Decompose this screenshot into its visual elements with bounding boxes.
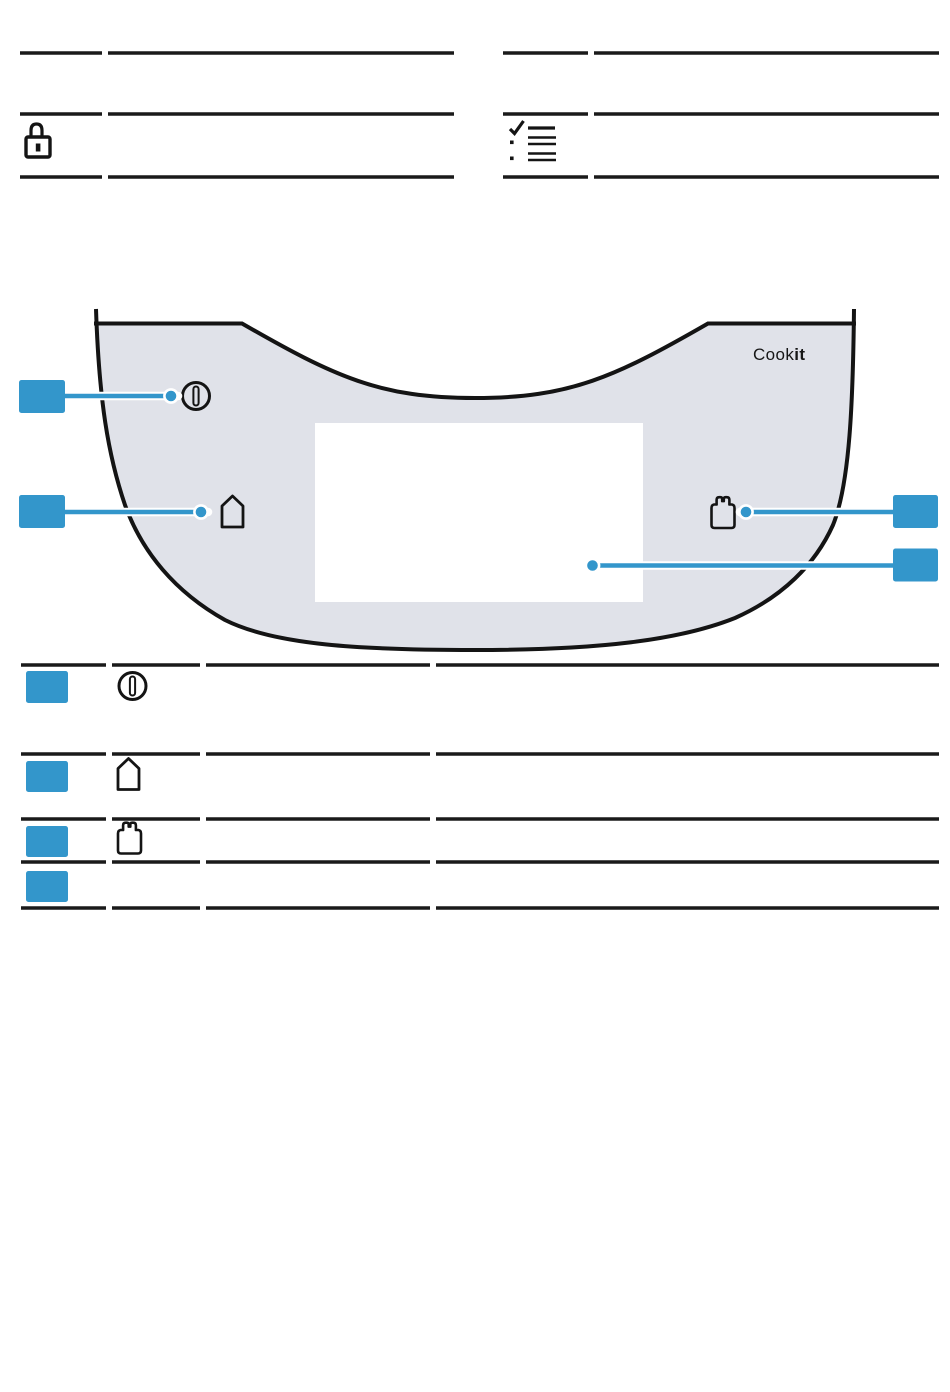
legend-row-power bbox=[26, 671, 146, 703]
manual-page: Cookit bbox=[0, 0, 950, 1392]
lock-icon bbox=[26, 124, 50, 157]
weight-icon bbox=[118, 823, 141, 854]
home-icon bbox=[118, 759, 139, 790]
callout-box-weight bbox=[893, 495, 938, 528]
control-panel-diagram: Cookit bbox=[0, 290, 950, 670]
brand-bold: it bbox=[794, 345, 805, 364]
brand-regular: Cook bbox=[753, 345, 794, 364]
legend-table bbox=[0, 655, 950, 915]
callout-box-home bbox=[19, 495, 65, 528]
brand-logo: Cookit bbox=[753, 345, 805, 364]
checklist-icon bbox=[510, 121, 556, 160]
legend-row-home bbox=[26, 759, 139, 793]
legend-badge-weight bbox=[26, 826, 68, 857]
callout-dot-power bbox=[164, 389, 177, 402]
legend-badge-display bbox=[26, 871, 68, 902]
legend-badge-home bbox=[26, 761, 68, 792]
callout-dot-home bbox=[194, 505, 207, 518]
display-screen bbox=[315, 423, 643, 602]
legend-row-display bbox=[26, 871, 68, 902]
callout-box-power bbox=[19, 380, 65, 413]
callout-dot-display bbox=[586, 559, 599, 572]
legend-badge-power bbox=[26, 671, 68, 703]
header-right-table bbox=[475, 40, 950, 190]
legend-row-weight bbox=[26, 823, 141, 857]
header-left-table bbox=[0, 40, 475, 190]
callout-dot-weight bbox=[739, 505, 752, 518]
power-icon bbox=[119, 673, 146, 700]
callout-box-display bbox=[893, 549, 938, 582]
